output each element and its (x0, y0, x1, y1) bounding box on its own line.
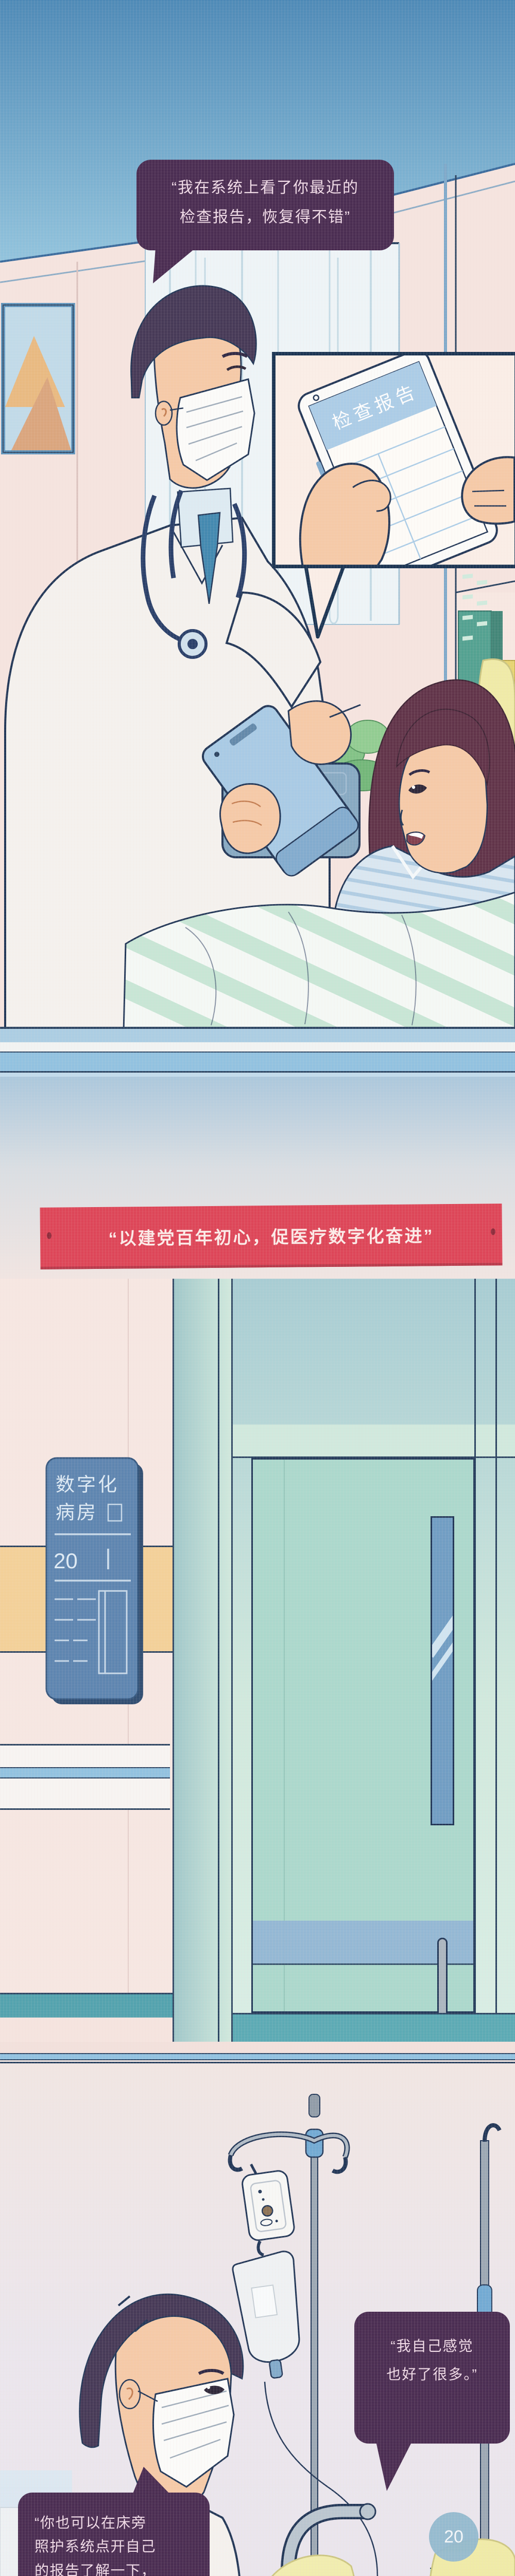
bubble2-line1: “我自己感觉 (354, 2332, 510, 2361)
door-lintel (233, 1425, 515, 1458)
elevator-wall (233, 1279, 515, 2042)
doctor-hand-pointing (288, 701, 351, 765)
bubble3-line3: 的报告了解一下， (35, 2559, 199, 2576)
door-frame-line-2 (495, 1279, 497, 2042)
doctor-ear (156, 401, 172, 425)
bed-footboard (0, 1027, 515, 1077)
floor-strip (0, 2042, 515, 2053)
door-window (431, 1516, 454, 1825)
pillow-left (263, 2555, 359, 2576)
hand-left (300, 464, 389, 565)
bubble3-line1: “你也可以在床旁 (35, 2511, 199, 2535)
comic-page: China unicom中国联通 (0, 0, 515, 2576)
ward-door (251, 1458, 475, 2013)
speech-bubble-doctor-2: “你也可以在床旁 照护系统点开自己 的报告了解一下， 那上面信息实时更 新，很智… (18, 2493, 210, 2576)
page-number-badge: 20 (429, 2512, 478, 2562)
door-frame-line (474, 1279, 476, 2042)
floor-blue-line (0, 2053, 515, 2060)
door-baseboard (233, 2013, 515, 2042)
pilaster (173, 1279, 233, 2042)
sign-line1: 数字化 (56, 1474, 119, 1495)
bubble3-line2: 照护系统点开自己 (35, 2535, 199, 2558)
bubble2-line2: 也好了很多。” (354, 2361, 510, 2389)
shelf-blue-stripe (0, 1767, 170, 1778)
sign-floor-number: 20 (54, 1549, 78, 1573)
inset-tablet-panel: 检查报告 (272, 352, 515, 568)
doctor2-ear (119, 2380, 140, 2409)
pilaster-edge (218, 1279, 219, 2042)
device-sensor-icon (262, 2205, 273, 2217)
bubble1-line1: “我在系统上看了你最近的 (136, 173, 394, 202)
doctor2-mask (153, 2379, 234, 2487)
speech-bubble-patient: “我自己感觉 也好了很多。” (354, 2312, 510, 2444)
inset-panel-tail (301, 564, 349, 641)
speech-bubble-doctor-1: “我在系统上看了你最近的 检查报告，恢复得不错” (136, 160, 394, 250)
wall-shelf (0, 1744, 170, 1810)
banner-text: “以建党百年初心，促医疗数字化奋进” (108, 1226, 434, 1249)
wall-picture-frame (3, 305, 73, 452)
inset-tablet-art: 检查报告 (276, 355, 514, 565)
sign-line2: 病房 (56, 1502, 98, 1523)
smart-infusion-monitor (240, 2160, 296, 2242)
hanger-hooks (230, 2155, 346, 2172)
slogan-banner: “以建党百年初心，促医疗数字化奋进” (40, 1204, 502, 1269)
doctor-hand-holding (220, 784, 280, 854)
ward-sign: 数字化 病房 20 (45, 1457, 146, 1707)
bubble1-line2: 检查报告，恢复得不错” (136, 202, 394, 232)
